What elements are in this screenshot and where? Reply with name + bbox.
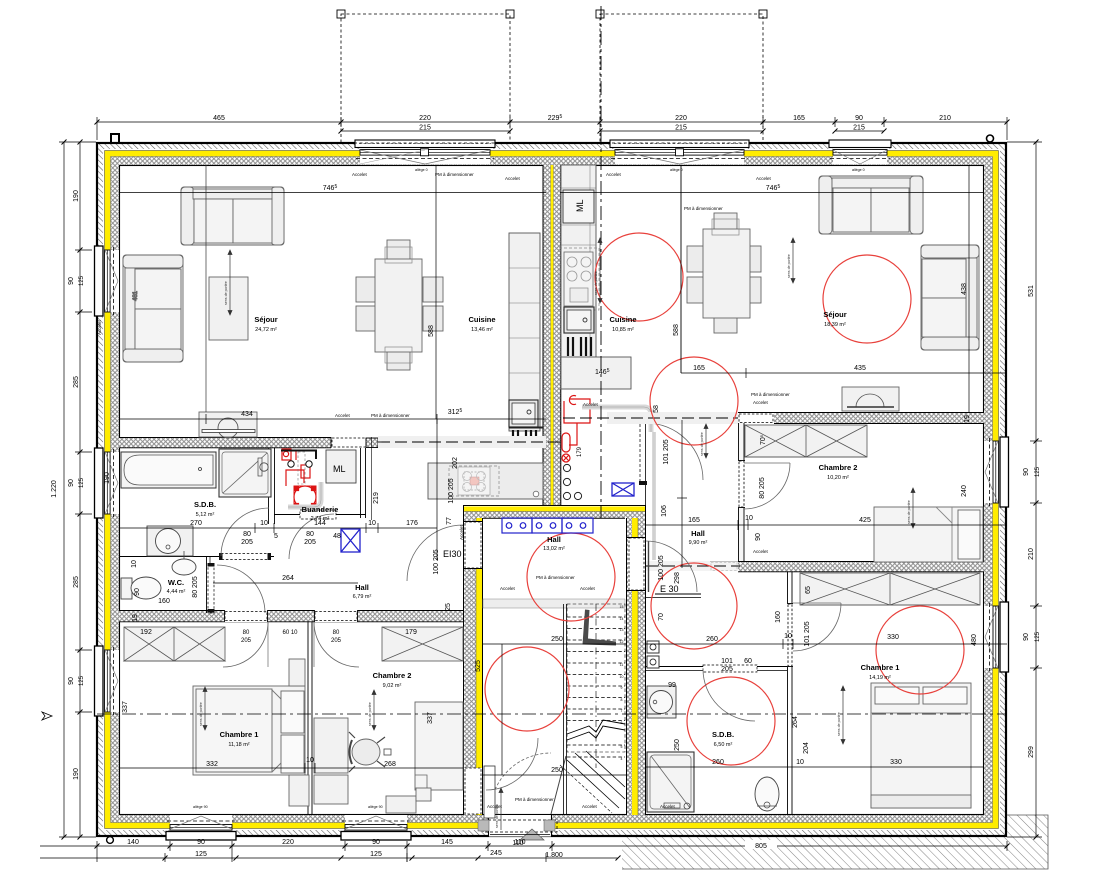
svg-text:588: 588: [428, 325, 435, 337]
svg-text:205: 205: [241, 638, 252, 644]
svg-text:165: 165: [688, 517, 700, 524]
svg-text:Buanderie: Buanderie: [302, 505, 339, 514]
svg-text:6,79 m²: 6,79 m²: [353, 594, 372, 600]
svg-text:100 205: 100 205: [448, 478, 455, 503]
svg-text:allège 0: allège 0: [670, 168, 683, 172]
svg-text:1.800: 1.800: [545, 852, 563, 859]
svg-text:10: 10: [306, 757, 314, 764]
svg-text:204: 204: [803, 742, 810, 754]
svg-text:525: 525: [475, 660, 482, 672]
svg-text:5,12 m²: 5,12 m²: [196, 512, 215, 518]
svg-text:S.D.B.: S.D.B.: [194, 500, 216, 509]
svg-text:9,02 m²: 9,02 m²: [383, 683, 402, 689]
svg-text:100 205: 100 205: [658, 555, 665, 580]
svg-text:285: 285: [73, 376, 80, 388]
svg-text:219: 219: [373, 492, 380, 504]
svg-text:allège 0: allège 0: [415, 168, 428, 172]
svg-text:5: 5: [621, 745, 623, 749]
svg-text:215: 215: [419, 125, 431, 132]
svg-text:425: 425: [859, 517, 871, 524]
svg-text:260: 260: [706, 636, 718, 643]
svg-text:Accelet: Accelet: [753, 549, 769, 554]
svg-text:sens de portée: sens de portée: [907, 500, 911, 524]
svg-text:285: 285: [73, 576, 80, 588]
svg-text:Accelet: Accelet: [580, 586, 596, 591]
svg-text:Accelet: Accelet: [335, 413, 351, 418]
svg-text:PM à dimensionner: PM à dimensionner: [435, 172, 474, 177]
svg-text:215: 215: [853, 125, 865, 132]
svg-text:11: 11: [620, 663, 624, 667]
svg-text:179: 179: [577, 446, 583, 457]
svg-text:215: 215: [675, 125, 687, 132]
svg-text:14,19 m²: 14,19 m²: [869, 675, 891, 681]
svg-text:160: 160: [775, 611, 782, 623]
svg-text:165: 165: [793, 115, 805, 122]
svg-text:Accelet: Accelet: [660, 804, 676, 809]
svg-text:332: 332: [206, 761, 218, 768]
svg-text:190: 190: [73, 190, 80, 202]
svg-text:10,20 m²: 10,20 m²: [827, 475, 849, 481]
svg-text:210: 210: [939, 115, 951, 122]
svg-text:10: 10: [260, 520, 268, 527]
svg-text:805: 805: [755, 843, 767, 850]
svg-text:101 205: 101 205: [663, 439, 670, 464]
svg-text:7: 7: [621, 709, 623, 713]
svg-text:245: 245: [490, 850, 502, 857]
svg-text:PM à dimensionner: PM à dimensionner: [684, 206, 723, 211]
svg-text:25: 25: [445, 603, 452, 611]
svg-text:465: 465: [213, 115, 225, 122]
svg-text:80: 80: [306, 531, 314, 538]
svg-text:13: 13: [620, 628, 624, 632]
svg-text:264: 264: [282, 575, 294, 582]
svg-text:sens de portée: sens de portée: [368, 702, 372, 726]
svg-text:Accelet: Accelet: [97, 319, 102, 335]
svg-text:Accelet: Accelet: [756, 176, 772, 181]
svg-text:480: 480: [971, 634, 978, 646]
svg-text:60 10: 60 10: [282, 630, 298, 636]
svg-text:Accelet: Accelet: [606, 172, 622, 177]
svg-text:268: 268: [384, 761, 396, 768]
svg-text:125: 125: [79, 675, 85, 686]
svg-text:260: 260: [712, 759, 724, 766]
svg-text:sens de portée: sens de portée: [594, 271, 598, 295]
svg-text:165: 165: [693, 365, 705, 372]
svg-text:250: 250: [551, 636, 563, 643]
svg-text:Accelet: Accelet: [500, 586, 516, 591]
svg-text:90: 90: [68, 479, 75, 487]
svg-text:8: 8: [621, 698, 623, 702]
svg-text:13,46 m²: 13,46 m²: [471, 327, 493, 333]
svg-text:90: 90: [134, 588, 141, 596]
svg-text:101: 101: [721, 658, 733, 665]
svg-text:125: 125: [370, 851, 382, 858]
svg-text:Séjour: Séjour: [823, 310, 846, 319]
svg-text:Accelet: Accelet: [583, 402, 599, 407]
svg-text:90: 90: [755, 533, 762, 541]
svg-text:192: 192: [140, 629, 152, 636]
svg-text:220: 220: [419, 115, 431, 122]
svg-text:438: 438: [961, 283, 968, 295]
svg-text:80 205: 80 205: [759, 477, 766, 499]
svg-text:481: 481: [133, 290, 139, 301]
svg-text:Chambre 1: Chambre 1: [220, 730, 259, 739]
svg-text:100 205: 100 205: [433, 549, 440, 574]
svg-text:176: 176: [406, 520, 418, 527]
svg-text:Cuisine: Cuisine: [609, 315, 636, 324]
svg-text:sens de portée: sens de portée: [224, 281, 228, 305]
svg-text:160: 160: [158, 598, 170, 605]
svg-text:Chambre 1: Chambre 1: [861, 663, 900, 672]
svg-text:ML: ML: [333, 464, 346, 474]
svg-text:Accelet: Accelet: [459, 524, 464, 540]
svg-text:Chambre 2: Chambre 2: [819, 463, 858, 472]
svg-text:PM à dimensionner: PM à dimensionner: [751, 392, 790, 397]
svg-text:250: 250: [674, 739, 681, 751]
svg-text:434: 434: [241, 411, 253, 418]
svg-text:205: 205: [331, 638, 342, 644]
svg-text:10: 10: [796, 759, 804, 766]
svg-text:202: 202: [452, 457, 459, 469]
svg-text:Hall: Hall: [547, 535, 561, 544]
svg-text:330: 330: [887, 634, 899, 641]
svg-text:allège 0: allège 0: [852, 168, 865, 172]
svg-text:90: 90: [68, 677, 75, 685]
svg-text:80 205: 80 205: [192, 576, 199, 598]
svg-text:Accelet: Accelet: [487, 804, 503, 809]
svg-text:E 30: E 30: [660, 584, 679, 594]
svg-text:sens de portée: sens de portée: [700, 432, 704, 456]
svg-text:65: 65: [805, 586, 812, 594]
svg-text:ML: ML: [575, 199, 585, 212]
svg-text:90: 90: [68, 277, 75, 285]
svg-text:205: 205: [721, 666, 733, 673]
svg-text:S.D.B.: S.D.B.: [712, 730, 734, 739]
svg-text:18,39 m²: 18,39 m²: [824, 322, 846, 328]
svg-text:19: 19: [132, 614, 139, 622]
svg-text:9,90 m²: 9,90 m²: [689, 540, 708, 546]
svg-text:337: 337: [122, 701, 129, 713]
svg-text:PM à dimensionner: PM à dimensionner: [515, 797, 554, 802]
svg-text:allège 90: allège 90: [193, 805, 208, 809]
svg-text:Accelet: Accelet: [753, 400, 769, 405]
svg-text:sens de portée: sens de portée: [837, 712, 841, 736]
svg-text:W.C.: W.C.: [168, 578, 184, 587]
svg-text:125: 125: [79, 477, 85, 488]
svg-text:337: 337: [427, 712, 434, 724]
svg-text:10: 10: [745, 515, 753, 522]
svg-text:140: 140: [127, 839, 139, 846]
svg-text:EI30: EI30: [443, 549, 462, 559]
svg-text:125: 125: [79, 275, 85, 286]
svg-text:531: 531: [1028, 285, 1035, 297]
svg-text:sens de portée: sens de portée: [787, 254, 791, 278]
svg-text:12: 12: [620, 640, 624, 644]
svg-text:220: 220: [282, 839, 294, 846]
svg-text:PM à dimensionner: PM à dimensionner: [371, 413, 410, 418]
svg-text:4: 4: [621, 757, 623, 761]
svg-text:Cuisine: Cuisine: [468, 315, 495, 324]
svg-text:PM à dimensionner: PM à dimensionner: [536, 575, 575, 580]
svg-text:60: 60: [744, 658, 752, 665]
svg-text:205: 205: [304, 539, 316, 546]
svg-text:10: 10: [784, 633, 792, 640]
svg-text:10: 10: [368, 520, 376, 527]
svg-text:80: 80: [333, 630, 340, 636]
svg-text:Accelet: Accelet: [505, 176, 521, 181]
svg-text:Séjour: Séjour: [254, 315, 277, 324]
svg-text:110: 110: [512, 840, 523, 847]
svg-text:299: 299: [1028, 746, 1035, 758]
svg-text:220: 220: [675, 115, 687, 122]
svg-text:6,50 m²: 6,50 m²: [714, 742, 733, 748]
svg-text:270: 270: [190, 520, 202, 527]
svg-text:70: 70: [658, 613, 665, 621]
svg-text:allège 90: allège 90: [368, 805, 383, 809]
svg-text:10,85 m²: 10,85 m²: [612, 327, 634, 333]
svg-text:125: 125: [1035, 631, 1041, 642]
svg-text:9: 9: [621, 686, 623, 690]
svg-text:10: 10: [131, 560, 138, 568]
svg-text:264: 264: [792, 716, 799, 728]
svg-text:435: 435: [854, 365, 866, 372]
svg-text:179: 179: [405, 629, 417, 636]
svg-text:Accelet: Accelet: [352, 172, 368, 177]
svg-text:90: 90: [197, 839, 205, 846]
svg-text:250: 250: [551, 767, 563, 774]
svg-text:13,02 m²: 13,02 m²: [543, 546, 565, 552]
svg-text:10: 10: [620, 675, 624, 679]
svg-text:125: 125: [195, 851, 207, 858]
svg-text:77: 77: [446, 517, 453, 525]
svg-text:48: 48: [333, 533, 341, 540]
svg-text:588: 588: [673, 324, 680, 336]
svg-text:90: 90: [372, 839, 380, 846]
svg-text:Hall: Hall: [691, 529, 705, 538]
svg-text:14: 14: [620, 617, 624, 621]
svg-text:Accelet: Accelet: [582, 804, 598, 809]
svg-text:90: 90: [1023, 633, 1030, 641]
svg-text:101 205: 101 205: [804, 621, 811, 646]
svg-text:58: 58: [653, 405, 660, 413]
svg-text:90: 90: [1023, 468, 1030, 476]
svg-text:298: 298: [674, 572, 681, 584]
svg-text:125: 125: [1035, 466, 1041, 477]
svg-text:Hall: Hall: [355, 583, 369, 592]
svg-text:80: 80: [243, 630, 250, 636]
svg-text:24,72 m²: 24,72 m²: [255, 327, 277, 333]
svg-text:210: 210: [1028, 548, 1035, 560]
svg-text:330: 330: [890, 759, 902, 766]
svg-text:90: 90: [855, 115, 863, 122]
svg-text:99: 99: [668, 682, 676, 689]
svg-text:sens de portée: sens de portée: [199, 702, 203, 726]
svg-text:Chambre 2: Chambre 2: [373, 671, 412, 680]
svg-text:19: 19: [964, 415, 971, 423]
svg-text:1.220: 1.220: [51, 480, 58, 498]
svg-text:190: 190: [104, 472, 111, 484]
svg-text:106: 106: [661, 505, 668, 517]
svg-text:15: 15: [620, 605, 624, 609]
svg-text:145: 145: [441, 839, 453, 846]
svg-text:205: 205: [241, 539, 253, 546]
svg-text:190: 190: [73, 768, 80, 780]
svg-text:80: 80: [243, 531, 251, 538]
svg-text:4,44 m²: 4,44 m²: [167, 589, 186, 595]
svg-text:5: 5: [274, 533, 278, 540]
svg-text:240: 240: [961, 485, 968, 497]
svg-text:2,74 m²: 2,74 m²: [311, 516, 330, 522]
svg-text:11,18 m²: 11,18 m²: [228, 742, 249, 748]
